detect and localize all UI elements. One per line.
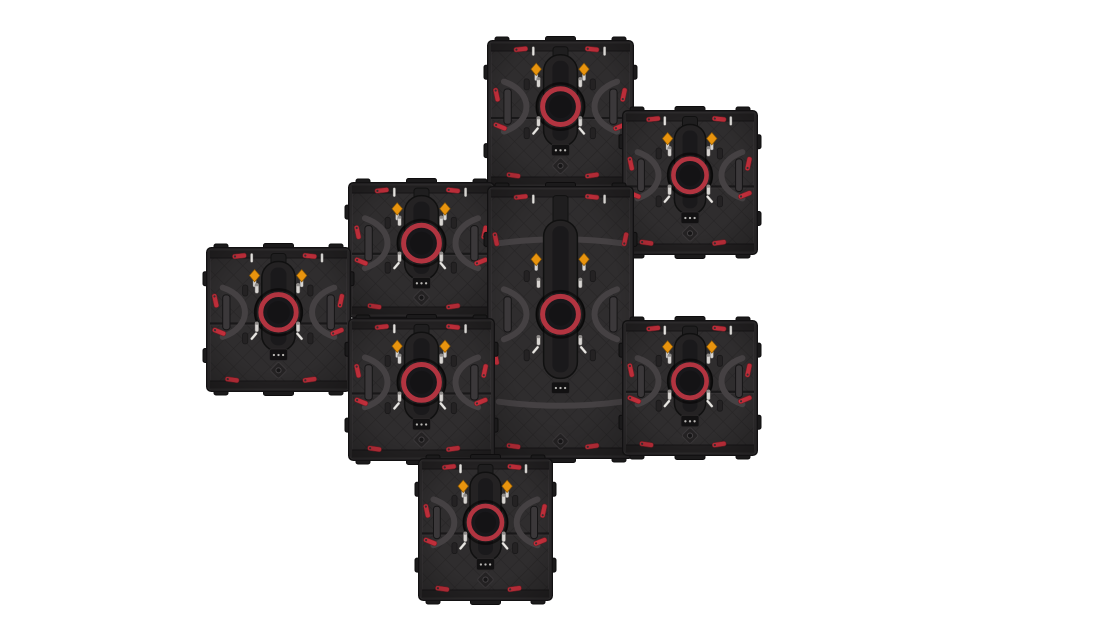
panel-top-right (622, 110, 758, 255)
product-render-stage (0, 0, 1120, 630)
panel-bottom-center (418, 458, 553, 601)
panel-mid-right (622, 320, 758, 456)
panel-center-tall (487, 186, 634, 459)
panel-upper-mid-left (348, 182, 495, 318)
panel-layer (0, 0, 1120, 630)
panel-lower-mid-left (348, 318, 495, 461)
panel-top-center (487, 40, 634, 188)
panel-far-left (206, 247, 351, 392)
